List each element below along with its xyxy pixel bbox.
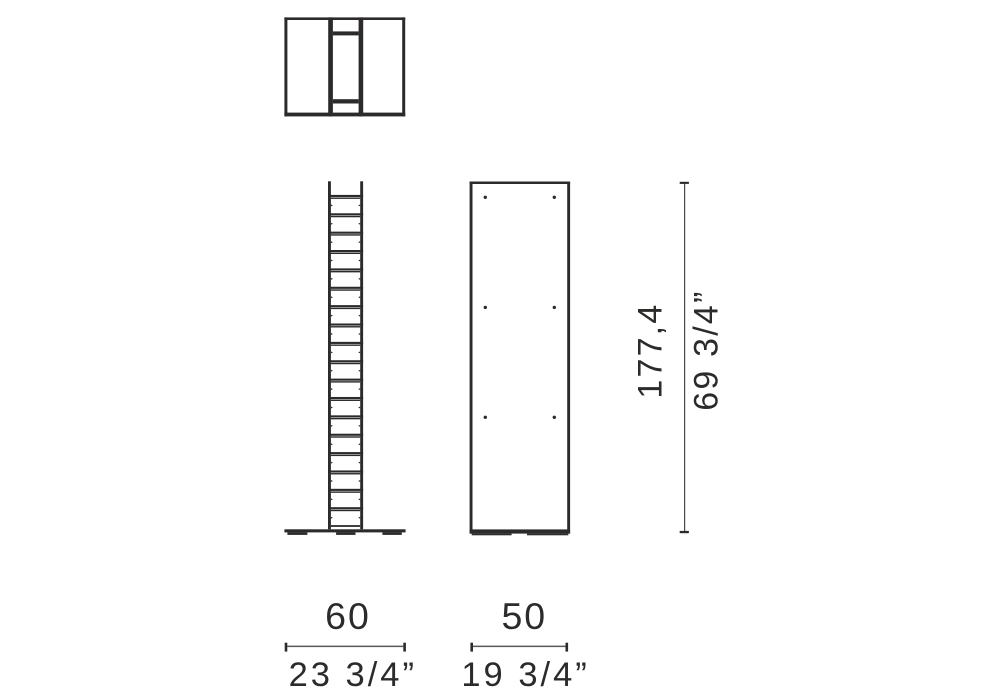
svg-text:60: 60 (325, 595, 371, 637)
svg-text:177,4: 177,4 (632, 303, 670, 399)
svg-text:69 3/4”: 69 3/4” (688, 289, 726, 410)
svg-text:19 3/4”: 19 3/4” (461, 656, 589, 694)
svg-text:50: 50 (501, 595, 547, 637)
svg-text:23 3/4”: 23 3/4” (289, 656, 417, 694)
